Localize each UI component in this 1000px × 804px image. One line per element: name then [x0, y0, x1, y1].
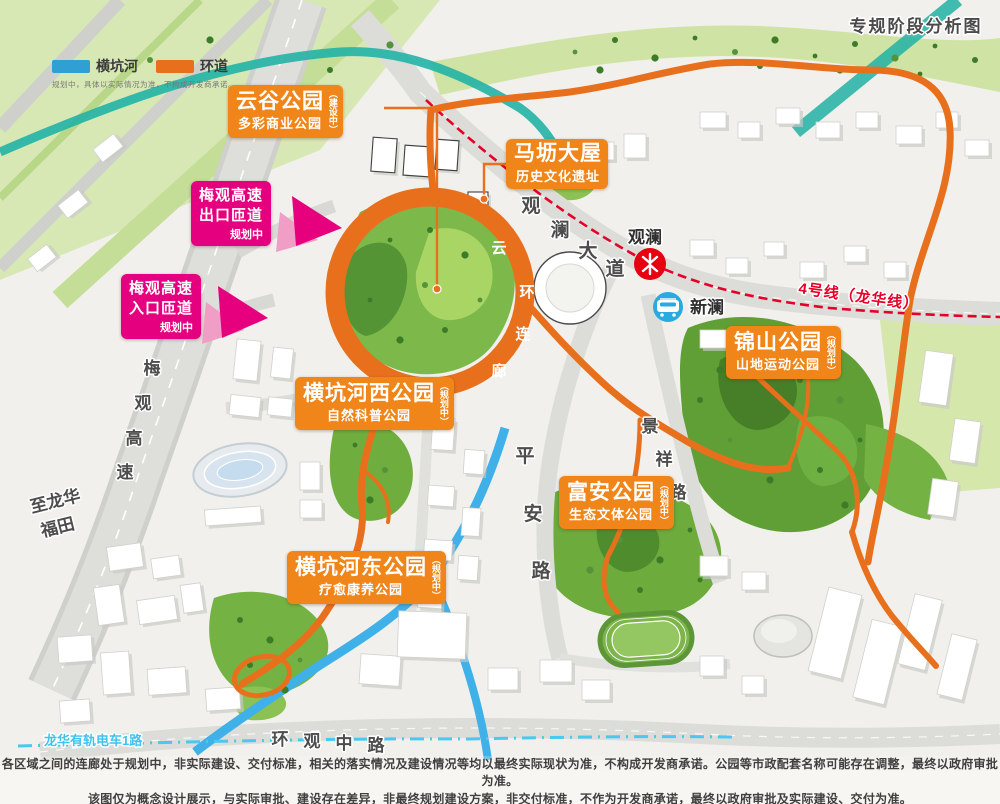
- svg-text:路: 路: [368, 735, 386, 755]
- building: [59, 699, 90, 723]
- footer-disclaimer: 各区域之间的连廊处于规划中，非实际建设、交付标准，相关的落实情况及建设情况等均以…: [0, 756, 1000, 804]
- svg-text:环: 环: [272, 730, 289, 749]
- building: [884, 262, 906, 278]
- building: [488, 668, 518, 690]
- building: [397, 611, 467, 659]
- label-jinshan-park: 锦山公园 山地运动公园 （规划中）: [726, 326, 841, 379]
- tram-line-label: 龙华有轨电车1路: [44, 733, 143, 748]
- building: [180, 583, 204, 614]
- svg-text:环: 环: [519, 284, 534, 301]
- tree-dot: [266, 636, 273, 643]
- tree-dot: [586, 566, 593, 573]
- building: [776, 108, 800, 124]
- tree-dot: [697, 397, 703, 403]
- ramp-line1: 梅观高速: [199, 186, 263, 206]
- tree-dot: [716, 366, 723, 373]
- building: [738, 122, 760, 138]
- tree-dot: [732, 49, 738, 55]
- tree-dot: [396, 336, 403, 343]
- park-status: （规划中）: [438, 381, 448, 426]
- building: [742, 572, 766, 590]
- park-status: （建设中）: [327, 89, 337, 134]
- building: [205, 687, 240, 711]
- label-fuan-park: 富安公园 生态文体公园 （规划中）: [559, 476, 674, 529]
- svg-text:廊: 廊: [491, 362, 506, 380]
- tree-dot: [817, 467, 823, 473]
- tree-dot: [612, 37, 618, 43]
- building: [764, 242, 784, 256]
- building: [233, 339, 261, 381]
- map-canvas: 专规阶段分析图 观澜 新澜 观 澜 大 道 平 安 路 景 祥 路 环 观 中 …: [0, 0, 1000, 804]
- tree-dot: [651, 54, 658, 61]
- park-status: （规划中）: [825, 330, 835, 375]
- building: [856, 112, 878, 128]
- planning-map: 专规阶段分析图 观澜 新澜 观 澜 大 道 平 安 路 景 祥 路 环 观 中 …: [0, 0, 1000, 804]
- tree-dot: [852, 41, 858, 47]
- tree-dot: [858, 438, 863, 443]
- svg-text:观: 观: [134, 394, 152, 413]
- svg-text:大: 大: [578, 239, 597, 262]
- building: [93, 584, 124, 625]
- park-name: 云谷公园: [236, 91, 324, 114]
- svg-text:祥: 祥: [656, 449, 673, 469]
- tree-dot: [478, 298, 483, 303]
- building: [229, 394, 261, 417]
- tree-dot: [388, 238, 393, 243]
- building: [300, 500, 322, 518]
- building: [742, 676, 764, 694]
- legend-label-river: 横坑河: [96, 56, 138, 76]
- tree-dot: [933, 44, 938, 49]
- building: [461, 507, 481, 536]
- building: [816, 122, 840, 138]
- disclaimer-line2: 该图仅为概念设计展示，与实际审批、建设存在差异，非最终规划建设方案，非交付标准，…: [0, 791, 1000, 804]
- building: [700, 330, 726, 348]
- tree-dot: [596, 66, 603, 73]
- svg-text:中: 中: [336, 733, 353, 753]
- building: [427, 485, 454, 507]
- building: [949, 418, 981, 463]
- park-name: 横坑河东公园: [295, 557, 427, 580]
- ramp-line2: 出口匝道: [199, 206, 263, 226]
- building: [267, 397, 293, 417]
- tree-dot: [637, 587, 643, 593]
- ramp-status: 规划中: [129, 319, 193, 335]
- park-subtitle: 山地运动公园: [734, 354, 822, 373]
- legend-swatch-river: [52, 60, 90, 73]
- svg-text:连: 连: [515, 325, 531, 343]
- tree-dot: [573, 50, 578, 55]
- building: [800, 262, 824, 278]
- xinlan-tram-icon: [653, 292, 683, 322]
- building: [151, 555, 182, 579]
- label-hengkeng-west-park: 横坑河西公园 自然科普公园 （规划中）: [295, 377, 454, 430]
- building: [205, 506, 262, 526]
- label-hengkeng-east-park: 横坑河东公园 疗愈康养公园 （规划中）: [287, 551, 446, 604]
- building: [624, 134, 646, 158]
- building: [726, 258, 748, 274]
- tree-dot: [891, 54, 898, 61]
- tree-dot: [688, 528, 693, 533]
- building: [457, 555, 479, 580]
- label-exit-ramp: 梅观高速 出口匝道 规划中: [191, 181, 271, 246]
- building: [106, 543, 143, 571]
- building: [300, 462, 320, 490]
- building: [57, 635, 93, 663]
- legend: 横坑河 环道 规划中，具体以实际情况为准，不构成开发商承诺。: [52, 56, 240, 90]
- svg-text:梅: 梅: [144, 358, 161, 378]
- park-name: 马坜大屋: [514, 143, 602, 166]
- building: [700, 556, 728, 576]
- park-name: 富安公园: [567, 482, 655, 505]
- tree-dot: [386, 41, 393, 48]
- building: [844, 246, 866, 262]
- legend-label-corridor: 环道: [200, 56, 228, 76]
- building: [700, 656, 724, 676]
- svg-text:观: 观: [303, 732, 321, 751]
- station-name-guanlan: 观澜: [627, 227, 662, 247]
- dome-building: [754, 615, 812, 657]
- building: [371, 137, 397, 173]
- ramp-status: 规划中: [199, 226, 263, 242]
- building: [147, 667, 187, 696]
- tree-dot: [353, 443, 358, 448]
- tree-dot: [206, 36, 213, 43]
- building: [896, 126, 922, 144]
- building: [700, 112, 726, 128]
- building: [582, 680, 610, 700]
- tree-dot: [836, 396, 843, 403]
- building: [965, 140, 989, 156]
- park-name: 锦山公园: [734, 332, 822, 355]
- svg-text:高: 高: [126, 428, 143, 448]
- legend-swatch-corridor: [156, 60, 194, 73]
- tree-dot: [698, 578, 703, 583]
- station-name-xinlan: 新澜: [690, 297, 724, 317]
- round-plaza-inner: [546, 264, 594, 312]
- ramp-line2: 入口匝道: [129, 299, 193, 319]
- park-subtitle: 生态文体公园: [567, 504, 655, 523]
- label-mali-house: 马坜大屋 历史文化遗址: [506, 139, 608, 189]
- tree-dot: [693, 36, 698, 41]
- svg-text:平: 平: [515, 446, 534, 467]
- building: [540, 660, 572, 682]
- disclaimer-line1: 各区域之间的连廊处于规划中，非实际建设、交付标准，相关的落实情况及建设情况等均以…: [0, 756, 1000, 791]
- tree-dot: [382, 467, 388, 473]
- guanlan-metro-icon: [634, 248, 666, 280]
- building: [435, 139, 459, 170]
- tree-dot: [972, 57, 978, 63]
- tree-dot: [368, 298, 373, 303]
- tree-dot: [766, 476, 773, 483]
- tree-dot: [237, 617, 243, 623]
- tree-dot: [366, 496, 373, 503]
- tree-dot: [813, 54, 818, 59]
- tree-dot: [728, 438, 733, 443]
- svg-text:路: 路: [531, 559, 551, 582]
- tree-dot: [841, 501, 848, 508]
- tree-dot: [461, 251, 468, 258]
- svg-text:观: 观: [521, 195, 540, 217]
- building: [137, 595, 178, 624]
- building: [463, 449, 485, 474]
- park-subtitle: 历史文化遗址: [514, 166, 602, 185]
- label-yungu-park: 云谷公园 多彩商业公园 （建设中）: [228, 85, 343, 138]
- park-status: （规划中）: [658, 480, 668, 525]
- park-subtitle: 自然科普公园: [303, 405, 435, 424]
- building: [690, 240, 714, 256]
- park-subtitle: 多彩商业公园: [236, 113, 324, 132]
- label-entry-ramp: 梅观高速 入口匝道 规划中: [121, 274, 201, 339]
- building: [270, 347, 293, 379]
- tree-dot: [298, 658, 303, 663]
- building: [101, 651, 132, 695]
- svg-text:云: 云: [491, 240, 506, 257]
- svg-text:景: 景: [642, 417, 659, 436]
- park-subtitle: 疗愈康养公园: [295, 579, 427, 598]
- tree-dot: [442, 327, 448, 333]
- park-name: 横坑河西公园: [303, 383, 435, 406]
- svg-text:安: 安: [523, 502, 542, 525]
- ramp-line1: 梅观高速: [129, 279, 193, 299]
- svg-text:速: 速: [117, 462, 134, 482]
- tree-dot: [771, 36, 778, 43]
- building: [928, 478, 959, 517]
- park-status: （规划中）: [430, 555, 440, 600]
- building: [359, 654, 401, 687]
- stadium-track: [598, 611, 693, 667]
- tree-dot: [422, 282, 428, 288]
- tree-dot: [427, 227, 433, 233]
- svg-text:道: 道: [605, 257, 624, 280]
- svg-text:澜: 澜: [550, 218, 569, 241]
- legend-note: 规划中，具体以实际情况为准，不构成开发商承诺。: [52, 79, 240, 90]
- tree-dot: [327, 67, 333, 73]
- tree-dot: [656, 556, 663, 563]
- map-title: 专规阶段分析图: [850, 16, 983, 36]
